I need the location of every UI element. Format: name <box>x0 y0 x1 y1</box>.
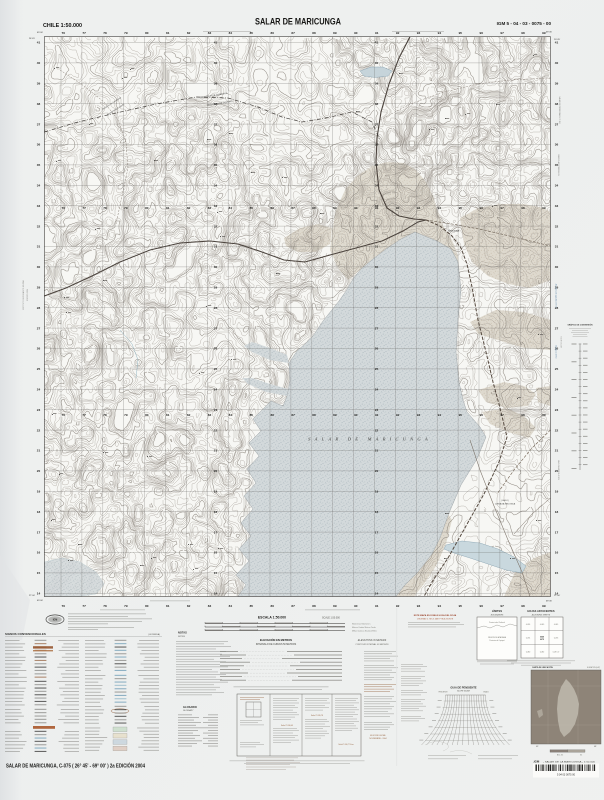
svg-text:38: 38 <box>375 102 379 106</box>
svg-text:NOTAS: NOTAS <box>178 631 187 635</box>
svg-text:37: 37 <box>555 122 559 126</box>
svg-text:34: 34 <box>37 184 41 188</box>
svg-text:28: 28 <box>214 306 218 310</box>
svg-text:REGIÓN DE ATACAMA: REGIÓN DE ATACAMA <box>488 636 507 639</box>
svg-text:97: 97 <box>500 206 504 210</box>
svg-text:24: 24 <box>37 388 41 392</box>
svg-text:79: 79 <box>124 206 128 210</box>
svg-text:19: 19 <box>375 490 379 494</box>
svg-text:24: 24 <box>375 388 379 392</box>
svg-text:GLOSSARY: GLOSSARY <box>183 709 194 712</box>
svg-text:31: 31 <box>214 245 218 249</box>
svg-text:40: 40 <box>37 61 41 65</box>
svg-text:33: 33 <box>214 204 218 208</box>
svg-text:28: 28 <box>375 306 379 310</box>
svg-text:CHILEMAT D. RE 21 MAY PTE AL: CHILEMAT D. RE 21 MAY PTE AL MONTE <box>417 618 454 621</box>
svg-text:IGM 5 - 04 - 03 - 0075 - 00: IGM 5 - 04 - 03 - 0075 - 00 <box>497 21 552 26</box>
svg-text:20: 20 <box>214 469 218 473</box>
svg-text:25: 25 <box>214 367 218 371</box>
svg-text:79: 79 <box>124 604 128 608</box>
svg-text:77: 77 <box>82 31 86 35</box>
svg-text:0-082: 0-082 <box>540 651 544 653</box>
svg-text:34: 34 <box>214 184 218 188</box>
svg-text:83: 83 <box>208 31 212 35</box>
svg-text:28: 28 <box>37 306 41 310</box>
svg-text:38: 38 <box>555 102 559 106</box>
svg-text:ESCALA 1:50.000: ESCALA 1:50.000 <box>258 616 286 620</box>
svg-text:HOJAS ADYACENTES: HOJAS ADYACENTES <box>527 609 554 613</box>
svg-text:ELEVATIONS IN METERS: ELEVATIONS IN METERS <box>358 639 387 642</box>
svg-text:BOUNDARIES: BOUNDARIES <box>491 613 504 616</box>
svg-text:69°00': 69°00' <box>37 600 44 602</box>
svg-text:16: 16 <box>555 551 559 555</box>
svg-text:80: 80 <box>145 206 149 210</box>
svg-text:84: 84 <box>229 604 233 608</box>
svg-text:GRÁFICO DE CONVERSIÓN: GRÁFICO DE CONVERSIÓN <box>567 324 593 327</box>
svg-text:16: 16 <box>214 551 218 555</box>
svg-text:35: 35 <box>375 163 379 167</box>
svg-text:76: 76 <box>61 413 65 417</box>
svg-text:22: 22 <box>555 428 559 432</box>
svg-text:89: 89 <box>333 206 337 210</box>
svg-text:29: 29 <box>375 286 379 290</box>
svg-text:82: 82 <box>187 206 191 210</box>
svg-text:41: 41 <box>214 41 218 45</box>
svg-text:95: 95 <box>459 31 463 35</box>
svg-text:29: 29 <box>37 286 41 290</box>
svg-text:LAGUNA VERDE 40 KM: LAGUNA VERDE 40 KM <box>557 460 560 480</box>
svg-text:Provincia de Copiapó: Provincia de Copiapó <box>489 640 504 642</box>
svg-text:SALAR DE PEDERNALES 25 KM: SALAR DE PEDERNALES 25 KM <box>558 96 561 124</box>
svg-text:EDICIÓN DIGITAL: EDICIÓN DIGITAL <box>370 734 386 737</box>
svg-text:95: 95 <box>459 604 463 608</box>
svg-text:92: 92 <box>396 604 400 608</box>
svg-text:80: 80 <box>145 604 149 608</box>
svg-text:32: 32 <box>375 224 379 228</box>
svg-text:27: 27 <box>555 326 559 330</box>
svg-text:17: 17 <box>214 530 218 534</box>
svg-text:36: 36 <box>375 143 379 147</box>
svg-text:84: 84 <box>229 206 233 210</box>
svg-text:26°45': 26°45' <box>554 39 561 41</box>
svg-text:CONTOUR INTERVAL 50 METERS: CONTOUR INTERVAL 50 METERS <box>355 643 389 646</box>
svg-text:92: 92 <box>396 413 400 417</box>
svg-text:17: 17 <box>37 530 41 534</box>
svg-text:20: 20 <box>37 469 41 473</box>
svg-text:Metros Yardas Meters Yards: Metros Yardas Meters Yards <box>352 626 376 629</box>
svg-text:SALAR DE MARICUNGA: SALAR DE MARICUNGA <box>255 17 342 27</box>
svg-text:17: 17 <box>375 530 379 534</box>
svg-text:81: 81 <box>166 31 170 35</box>
svg-text:87: 87 <box>291 31 295 35</box>
svg-text:91: 91 <box>375 413 379 417</box>
svg-text:85: 85 <box>250 413 254 417</box>
svg-text:EDICION 2004: EDICION 2004 <box>27 289 29 301</box>
svg-text:21: 21 <box>555 449 559 453</box>
svg-text:91: 91 <box>375 604 379 608</box>
svg-text:93: 93 <box>417 31 421 35</box>
svg-text:82: 82 <box>187 604 191 608</box>
svg-text:78: 78 <box>103 31 107 35</box>
svg-text:Acueducto 12 Km: Acueducto 12 Km <box>555 345 558 359</box>
svg-text:96: 96 <box>479 413 483 417</box>
svg-text:26: 26 <box>37 347 41 351</box>
svg-text:30: 30 <box>555 265 559 269</box>
svg-text:68°45': 68°45' <box>546 32 553 34</box>
svg-text:CARTA DE UBICACIÓN: CARTA DE UBICACIÓN <box>532 666 553 669</box>
svg-text:88: 88 <box>312 31 316 35</box>
svg-text:99: 99 <box>542 604 546 608</box>
svg-text:30: 30 <box>375 265 379 269</box>
svg-text:94: 94 <box>438 31 442 35</box>
svg-text:22: 22 <box>37 428 41 432</box>
svg-text:33: 33 <box>37 204 41 208</box>
svg-text:77: 77 <box>82 206 86 210</box>
svg-text:81: 81 <box>166 206 170 210</box>
svg-text:83: 83 <box>208 206 212 210</box>
svg-text:94: 94 <box>438 604 442 608</box>
svg-text:87: 87 <box>291 206 295 210</box>
svg-text:83: 83 <box>208 604 212 608</box>
svg-text:85: 85 <box>250 206 254 210</box>
svg-text:40: 40 <box>375 61 379 65</box>
svg-text:87: 87 <box>291 604 295 608</box>
svg-text:32: 32 <box>555 224 559 228</box>
svg-text:37: 37 <box>214 122 218 126</box>
svg-text:68°: 68° <box>594 746 597 748</box>
svg-text:27: 27 <box>214 326 218 330</box>
svg-text:41: 41 <box>375 41 379 45</box>
svg-text:Miles Km: Miles Km <box>557 754 564 756</box>
svg-text:35: 35 <box>214 163 218 167</box>
svg-text:IGM: IGM <box>53 619 58 622</box>
svg-text:15: 15 <box>214 571 218 575</box>
svg-text:79: 79 <box>124 31 128 35</box>
svg-text:82: 82 <box>187 31 191 35</box>
svg-text:99: 99 <box>542 206 546 210</box>
svg-text:84: 84 <box>229 31 233 35</box>
svg-text:Señal 7 639,78: Señal 7 639,78 <box>311 714 323 717</box>
svg-text:27: 27 <box>37 326 41 330</box>
svg-text:97: 97 <box>500 413 504 417</box>
svg-text:INSTITUTO GEOGRAFICO MILITAR: INSTITUTO GEOGRAFICO MILITAR <box>22 280 25 310</box>
svg-text:35: 35 <box>37 163 41 167</box>
svg-text:97: 97 <box>500 604 504 608</box>
svg-text:27°00': 27°00' <box>29 595 36 597</box>
svg-text:19: 19 <box>555 490 559 494</box>
svg-text:15: 15 <box>375 571 379 575</box>
svg-text:5 04 03 0075 00: 5 04 03 0075 00 <box>557 774 576 777</box>
svg-text:36: 36 <box>37 143 41 147</box>
svg-text:30: 30 <box>37 265 41 269</box>
svg-text:0-065: 0-065 <box>554 624 558 626</box>
svg-text:89: 89 <box>333 604 337 608</box>
svg-text:0-026: 0-026 <box>526 624 530 626</box>
svg-text:90: 90 <box>354 206 358 210</box>
svg-text:PENDIENTE: PENDIENTE <box>438 692 447 694</box>
svg-text:33: 33 <box>555 204 559 208</box>
svg-text:81: 81 <box>166 413 170 417</box>
svg-text:27: 27 <box>375 326 379 330</box>
svg-text:98: 98 <box>521 413 525 417</box>
svg-text:88: 88 <box>312 206 316 210</box>
svg-text:26: 26 <box>375 347 379 351</box>
svg-text:ADJOINING SHEETS: ADJOINING SHEETS <box>531 613 551 616</box>
svg-text:96: 96 <box>479 206 483 210</box>
svg-text:94: 94 <box>438 413 442 417</box>
svg-text:INTERVALO DE CURVAS 50 METROS: INTERVALO DE CURVAS 50 METROS <box>256 643 297 646</box>
svg-text:21: 21 <box>375 449 379 453</box>
svg-text:96: 96 <box>479 31 483 35</box>
svg-text:15: 15 <box>37 571 41 575</box>
svg-text:SIGNOS CONVENCIONALES: SIGNOS CONVENCIONALES <box>5 632 46 636</box>
svg-text:Millas náuticas Nautical Mil: Millas náuticas Nautical Miles <box>352 630 377 633</box>
svg-text:99: 99 <box>542 413 546 417</box>
svg-text:82: 82 <box>187 413 191 417</box>
svg-text:36: 36 <box>555 143 559 147</box>
svg-text:97: 97 <box>500 31 504 35</box>
svg-text:23: 23 <box>555 408 559 412</box>
svg-text:- SALAR DE LA MARICUNGA - 1:50: - SALAR DE LA MARICUNGA - 1:50.000 <box>543 760 596 763</box>
svg-text:21: 21 <box>37 449 41 453</box>
svg-text:76: 76 <box>61 31 65 35</box>
svg-text:93: 93 <box>417 206 421 210</box>
svg-text:86: 86 <box>270 413 274 417</box>
svg-text:22: 22 <box>214 428 218 432</box>
svg-text:18: 18 <box>555 510 559 514</box>
svg-text:17: 17 <box>555 530 559 534</box>
svg-text:GUIA DE PENDIENTE: GUIA DE PENDIENTE <box>450 686 477 690</box>
svg-text:83: 83 <box>208 413 212 417</box>
svg-text:0-080: 0-080 <box>526 651 530 653</box>
svg-text:15: 15 <box>555 571 559 575</box>
svg-text:38: 38 <box>37 102 41 106</box>
svg-text:92: 92 <box>396 206 400 210</box>
svg-text:14: 14 <box>375 592 379 596</box>
svg-text:38: 38 <box>214 102 218 106</box>
svg-text:77: 77 <box>82 604 86 608</box>
svg-text:0-076: 0-076 <box>554 638 558 640</box>
svg-text:27°00': 27°00' <box>554 595 561 597</box>
svg-text:32: 32 <box>37 224 41 228</box>
svg-text:69°00': 69°00' <box>37 32 44 34</box>
svg-text:90: 90 <box>354 604 358 608</box>
svg-text:26: 26 <box>214 347 218 351</box>
svg-text:78: 78 <box>103 206 107 210</box>
svg-text:20: 20 <box>375 469 379 473</box>
svg-text:39: 39 <box>214 82 218 86</box>
svg-text:23: 23 <box>375 408 379 412</box>
svg-text:SLOPE GUIDE: SLOPE GUIDE <box>457 691 471 693</box>
svg-text:34: 34 <box>555 184 559 188</box>
svg-text:0075: 0075 <box>540 639 544 641</box>
svg-text:76: 76 <box>61 206 65 210</box>
svg-text:30: 30 <box>214 265 218 269</box>
svg-text:40: 40 <box>555 61 559 65</box>
svg-text:Señal 7 630,49: Señal 7 630,49 <box>281 724 293 727</box>
svg-text:18: 18 <box>37 510 41 514</box>
svg-text:26°45': 26°45' <box>29 38 36 40</box>
svg-text:33: 33 <box>375 204 379 208</box>
svg-text:Señal 7 630,77 Kms: Señal 7 630,77 Kms <box>338 743 353 746</box>
svg-text:31: 31 <box>555 245 559 249</box>
svg-text:78: 78 <box>103 604 107 608</box>
svg-text:92: 92 <box>396 31 400 35</box>
svg-text:36: 36 <box>214 143 218 147</box>
svg-text:39: 39 <box>37 82 41 86</box>
svg-text:CAMINO A POTRERILLOS: CAMINO A POTRERILLOS <box>557 154 560 177</box>
svg-text:14: 14 <box>214 592 218 596</box>
svg-text:76: 76 <box>61 604 65 608</box>
svg-text:19: 19 <box>214 490 218 494</box>
svg-text:34: 34 <box>375 184 379 188</box>
svg-text:18: 18 <box>214 510 218 514</box>
svg-text:16: 16 <box>375 551 379 555</box>
svg-text:95: 95 <box>459 206 463 210</box>
svg-text:98: 98 <box>521 31 525 35</box>
svg-text:(LAGO): (LAGO) <box>501 499 508 502</box>
svg-text:93: 93 <box>417 413 421 417</box>
svg-text:86: 86 <box>270 31 274 35</box>
svg-text:80: 80 <box>145 31 149 35</box>
svg-text:CHILE 1:50.000: CHILE 1:50.000 <box>43 23 82 29</box>
svg-text:41: 41 <box>555 41 559 45</box>
svg-text:18: 18 <box>375 510 379 514</box>
svg-text:93: 93 <box>417 604 421 608</box>
svg-text:87: 87 <box>291 413 295 417</box>
svg-text:32: 32 <box>214 224 218 228</box>
svg-text:89: 89 <box>333 413 337 417</box>
svg-text:41: 41 <box>37 41 41 45</box>
svg-text:0-08 CO: 0-08 CO <box>553 651 560 653</box>
svg-text:96: 96 <box>479 604 483 608</box>
svg-text:SCALE 1:50.000: SCALE 1:50.000 <box>322 617 340 620</box>
svg-text:NOTES: NOTES <box>178 636 186 638</box>
svg-text:.IGM: .IGM <box>533 759 540 763</box>
svg-text:25: 25 <box>375 367 379 371</box>
svg-text:14: 14 <box>37 592 41 596</box>
svg-text:GLOSARIO: GLOSARIO <box>183 705 197 709</box>
svg-text:78: 78 <box>103 413 107 417</box>
svg-text:98: 98 <box>521 206 525 210</box>
svg-text:88: 88 <box>312 413 316 417</box>
svg-text:31: 31 <box>375 245 379 249</box>
svg-text:68°45': 68°45' <box>546 601 553 603</box>
svg-text:81: 81 <box>166 604 170 608</box>
svg-text:91: 91 <box>375 31 379 35</box>
svg-text:90: 90 <box>354 413 358 417</box>
svg-text:98: 98 <box>521 604 525 608</box>
svg-text:40: 40 <box>214 61 218 65</box>
svg-text:CIENAGA REDONDA: CIENAGA REDONDA <box>495 503 516 506</box>
svg-text:79: 79 <box>124 413 128 417</box>
svg-text:21: 21 <box>214 449 218 453</box>
svg-text:23: 23 <box>214 408 218 412</box>
svg-text:86: 86 <box>270 206 274 210</box>
svg-text:22: 22 <box>375 428 379 432</box>
svg-text:84: 84 <box>229 413 233 417</box>
svg-text:24: 24 <box>214 388 218 392</box>
svg-text:25: 25 <box>37 367 41 371</box>
svg-text:Kilómetros Kilometers: Kilómetros Kilometers <box>352 623 370 626</box>
svg-text:39: 39 <box>375 82 379 86</box>
svg-text:77: 77 <box>82 413 86 417</box>
svg-text:86: 86 <box>270 604 274 608</box>
svg-text:37: 37 <box>37 122 41 126</box>
svg-text:31: 31 <box>37 245 41 249</box>
svg-text:SALAR DE MARICUNGA, C-075 ( 26: SALAR DE MARICUNGA, C-075 ( 26° 45' - 69… <box>6 762 146 770</box>
svg-text:(LEYENDA): (LEYENDA) <box>148 633 160 636</box>
svg-text:0-074: 0-074 <box>526 638 530 640</box>
svg-text:NOVIEMBRE - 2004: NOVIEMBRE - 2004 <box>369 738 386 740</box>
svg-text:39: 39 <box>555 82 559 86</box>
svg-text:25: 25 <box>555 367 559 371</box>
svg-text:85: 85 <box>250 604 254 608</box>
svg-text:88: 88 <box>312 604 316 608</box>
svg-text:23: 23 <box>37 408 41 412</box>
svg-text:80: 80 <box>145 413 149 417</box>
svg-text:Acueducto de agua dulce 25 Km: Acueducto de agua dulce 25 Km <box>555 284 558 309</box>
svg-text:16: 16 <box>37 551 41 555</box>
svg-text:37: 37 <box>375 122 379 126</box>
svg-text:ESTE MAPA ES DOBLE HOJA DEL RO: ESTE MAPA ES DOBLE HOJA DEL ROJA <box>414 614 457 617</box>
svg-text:94: 94 <box>438 206 442 210</box>
svg-text:89: 89 <box>333 31 337 35</box>
svg-text:SALAR DE MARICUNGA: SALAR DE MARICUNGA <box>308 437 432 442</box>
svg-text:85: 85 <box>250 31 254 35</box>
svg-text:29: 29 <box>214 286 218 290</box>
svg-text:69°: 69° <box>536 746 539 748</box>
svg-text:95: 95 <box>459 413 463 417</box>
svg-text:24: 24 <box>555 388 559 392</box>
svg-text:0-069: 0-069 <box>540 624 544 626</box>
svg-text:19: 19 <box>37 490 41 494</box>
svg-text:90: 90 <box>354 31 358 35</box>
